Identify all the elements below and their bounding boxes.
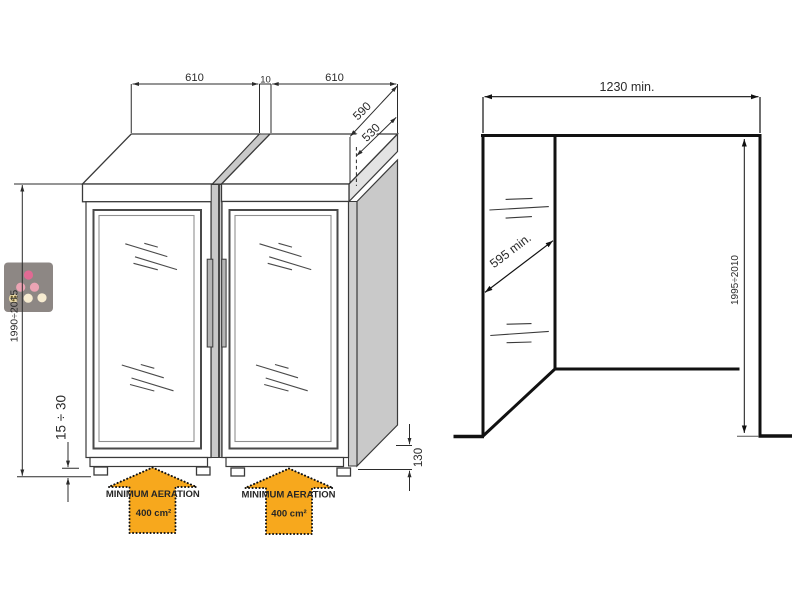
svg-text:400 cm²: 400 cm² bbox=[271, 509, 306, 520]
svg-text:15 ÷ 30: 15 ÷ 30 bbox=[54, 395, 69, 440]
svg-text:MINIMUM AERATION: MINIMUM AERATION bbox=[106, 489, 200, 500]
svg-text:1995÷2010: 1995÷2010 bbox=[730, 255, 741, 305]
svg-text:MINIMUM AERATION: MINIMUM AERATION bbox=[242, 490, 336, 501]
svg-text:610: 610 bbox=[325, 72, 344, 84]
svg-text:610: 610 bbox=[185, 72, 204, 84]
svg-text:1230 min.: 1230 min. bbox=[600, 80, 655, 94]
svg-text:130: 130 bbox=[413, 448, 425, 467]
svg-text:10: 10 bbox=[260, 75, 271, 86]
svg-text:1990÷2015: 1990÷2015 bbox=[9, 290, 21, 343]
svg-text:400 cm²: 400 cm² bbox=[136, 508, 171, 519]
